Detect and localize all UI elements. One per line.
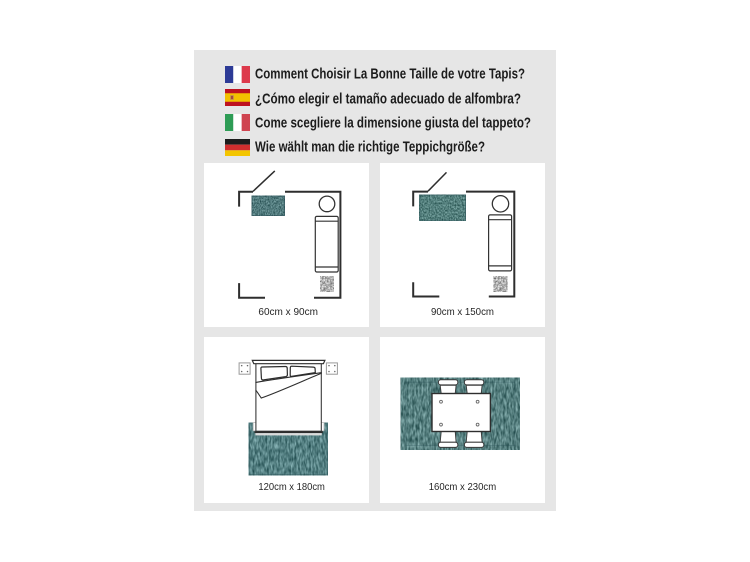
svg-text:Comment Choisir La Bonne Taill: Comment Choisir La Bonne Taille de votre…	[255, 66, 525, 83]
svg-text:120cm x 180cm: 120cm x 180cm	[258, 482, 325, 493]
svg-text:90cm x 150cm: 90cm x 150cm	[431, 307, 494, 318]
svg-text:¿Cómo elegir el tamaño adecuad: ¿Cómo elegir el tamaño adecuado de alfom…	[255, 91, 521, 108]
svg-text:Come scegliere la dimensione g: Come scegliere la dimensione giusta del …	[255, 114, 531, 131]
svg-text:60cm x 90cm: 60cm x 90cm	[258, 307, 318, 318]
svg-text:160cm x 230cm: 160cm x 230cm	[429, 482, 497, 493]
svg-text:Wie wählt man die richtige Tep: Wie wählt man die richtige Teppichgröße?	[255, 139, 485, 156]
